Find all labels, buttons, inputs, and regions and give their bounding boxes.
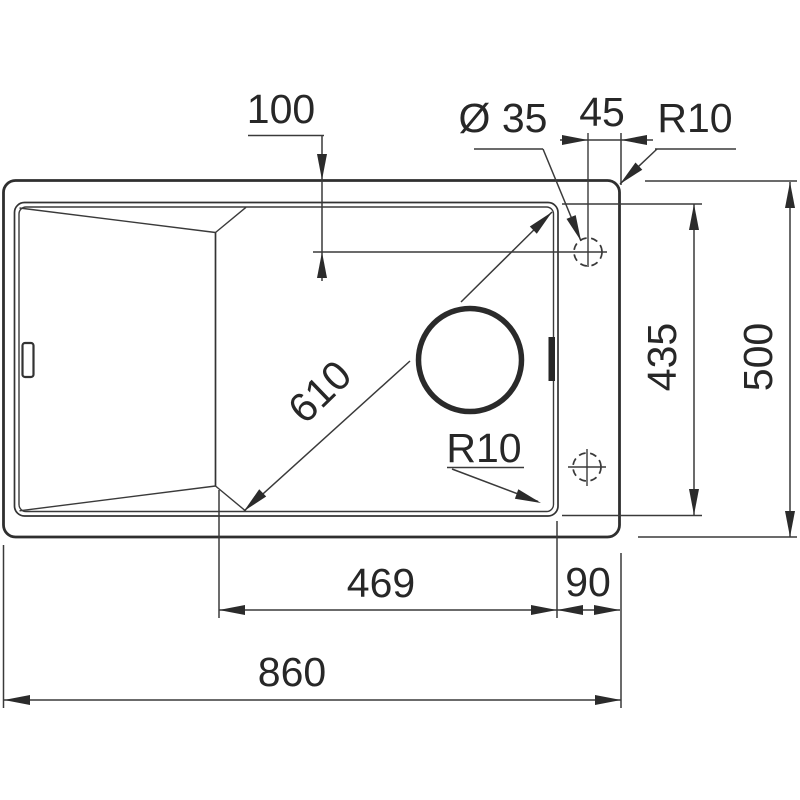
dim-label-469: 469 [347, 560, 415, 606]
dim-label-r10-bowl: R10 [446, 425, 521, 471]
dim-label-435: 435 [639, 323, 685, 391]
dim-label-90: 90 [565, 559, 611, 605]
drawing-canvas: 100 Ø 35 45 R10 610 R10 [0, 0, 800, 800]
dim-label-100: 100 [247, 86, 315, 132]
dim-label-tap-diameter: Ø 35 [459, 95, 548, 141]
dim-label-500: 500 [735, 323, 781, 391]
sink-technical-drawing: 100 Ø 35 45 R10 610 R10 [0, 0, 800, 800]
dim-label-860: 860 [258, 649, 326, 695]
overflow-slot-left [23, 343, 34, 377]
dim-label-r10-outer: R10 [657, 95, 732, 141]
overflow-mark-right [549, 337, 556, 381]
dim-label-45: 45 [579, 89, 625, 135]
